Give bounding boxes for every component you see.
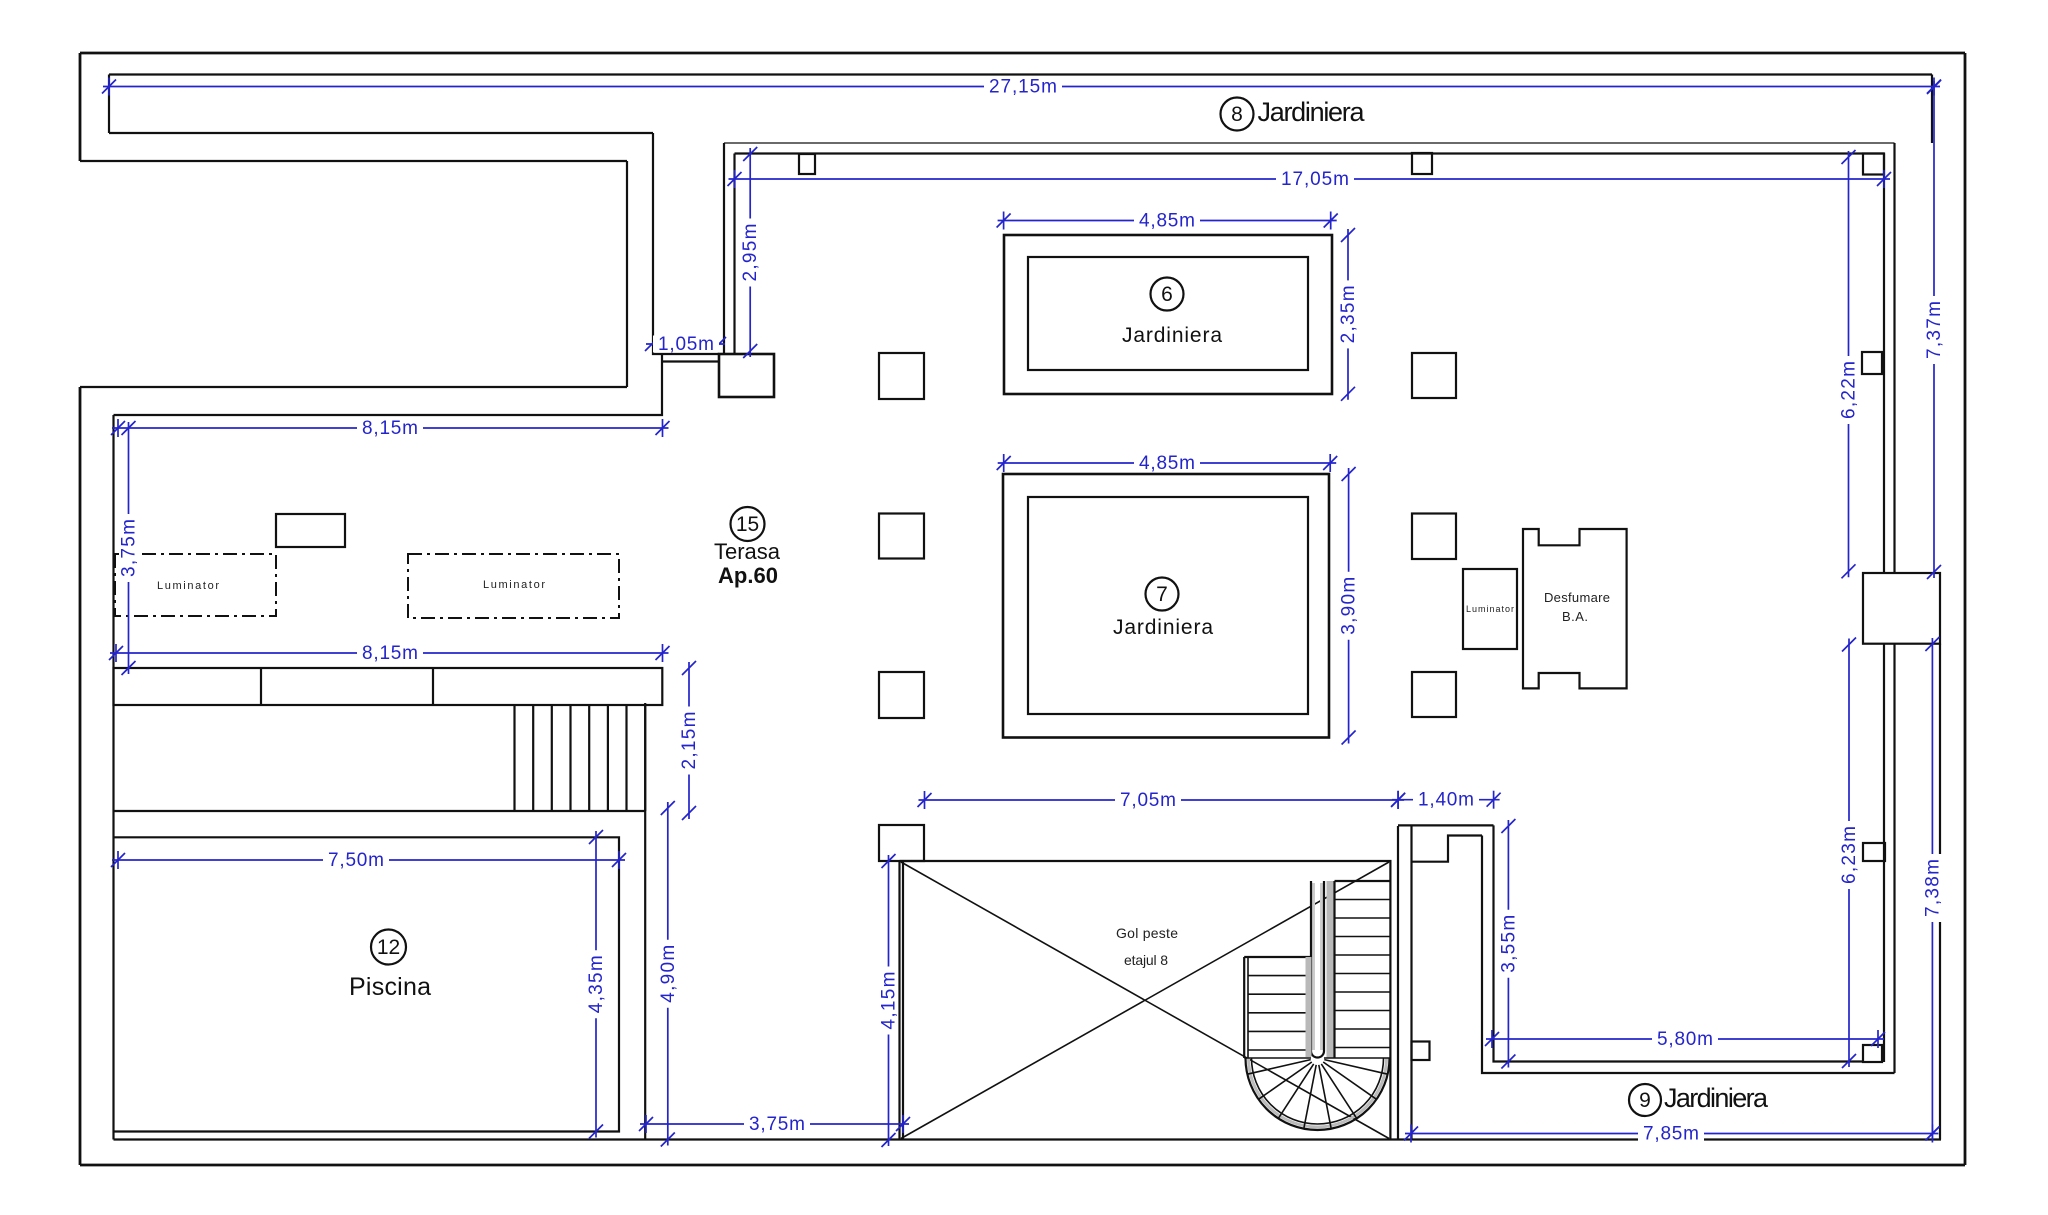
svg-text:2,95m: 2,95m: [740, 224, 761, 282]
svg-text:27,15m: 27,15m: [989, 77, 1057, 98]
svg-text:6,22m: 6,22m: [1839, 361, 1860, 419]
svg-text:Luminator: Luminator: [157, 580, 219, 592]
svg-text:1,40m: 1,40m: [1418, 790, 1474, 811]
svg-text:3,90m: 3,90m: [1339, 577, 1360, 635]
svg-text:9: 9: [1639, 1089, 1651, 1112]
svg-text:7,50m: 7,50m: [328, 850, 384, 871]
svg-text:8: 8: [1231, 103, 1243, 126]
svg-text:4,90m: 4,90m: [658, 945, 679, 1003]
svg-text:7,37m: 7,37m: [1924, 301, 1945, 359]
svg-text:4,15m: 4,15m: [879, 972, 900, 1030]
svg-text:Luminator: Luminator: [1466, 604, 1514, 614]
svg-text:Terasa: Terasa: [714, 539, 781, 564]
svg-text:5,80m: 5,80m: [1657, 1029, 1713, 1050]
svg-text:7,38m: 7,38m: [1922, 859, 1943, 917]
svg-text:3,75m: 3,75m: [749, 1114, 805, 1135]
svg-text:Piscina: Piscina: [349, 973, 431, 1001]
svg-text:4,35m: 4,35m: [586, 955, 607, 1013]
svg-text:3,75m: 3,75m: [119, 519, 140, 577]
svg-text:17,05m: 17,05m: [1281, 169, 1349, 190]
svg-text:Luminator: Luminator: [483, 579, 545, 591]
svg-text:1,05m: 1,05m: [658, 334, 714, 355]
svg-text:7,85m: 7,85m: [1643, 1124, 1699, 1145]
svg-text:Desfumare: Desfumare: [1544, 590, 1610, 605]
svg-text:12: 12: [377, 936, 400, 959]
svg-text:7: 7: [1156, 583, 1168, 606]
svg-text:Jardiniera: Jardiniera: [1258, 97, 1366, 127]
svg-text:etajul 8: etajul 8: [1124, 952, 1168, 968]
svg-text:2,35m: 2,35m: [1338, 285, 1359, 343]
svg-text:Jardiniera: Jardiniera: [1122, 324, 1222, 347]
svg-text:Jardiniera: Jardiniera: [1664, 1083, 1769, 1113]
svg-text:2,15m: 2,15m: [679, 712, 700, 770]
svg-text:4,85m: 4,85m: [1139, 211, 1195, 232]
svg-text:15: 15: [736, 513, 759, 536]
svg-text:B.A.: B.A.: [1562, 609, 1588, 624]
svg-text:3,55m: 3,55m: [1498, 915, 1519, 973]
svg-text:Gol peste: Gol peste: [1116, 925, 1178, 941]
svg-text:4,85m: 4,85m: [1139, 453, 1195, 474]
svg-text:6: 6: [1161, 283, 1173, 306]
svg-text:8,15m: 8,15m: [362, 643, 418, 664]
svg-text:Ap.60: Ap.60: [718, 563, 778, 588]
svg-text:6,23m: 6,23m: [1839, 826, 1860, 884]
svg-text:8,15m: 8,15m: [362, 418, 418, 439]
svg-text:Jardiniera: Jardiniera: [1113, 616, 1213, 639]
svg-text:7,05m: 7,05m: [1120, 790, 1176, 811]
